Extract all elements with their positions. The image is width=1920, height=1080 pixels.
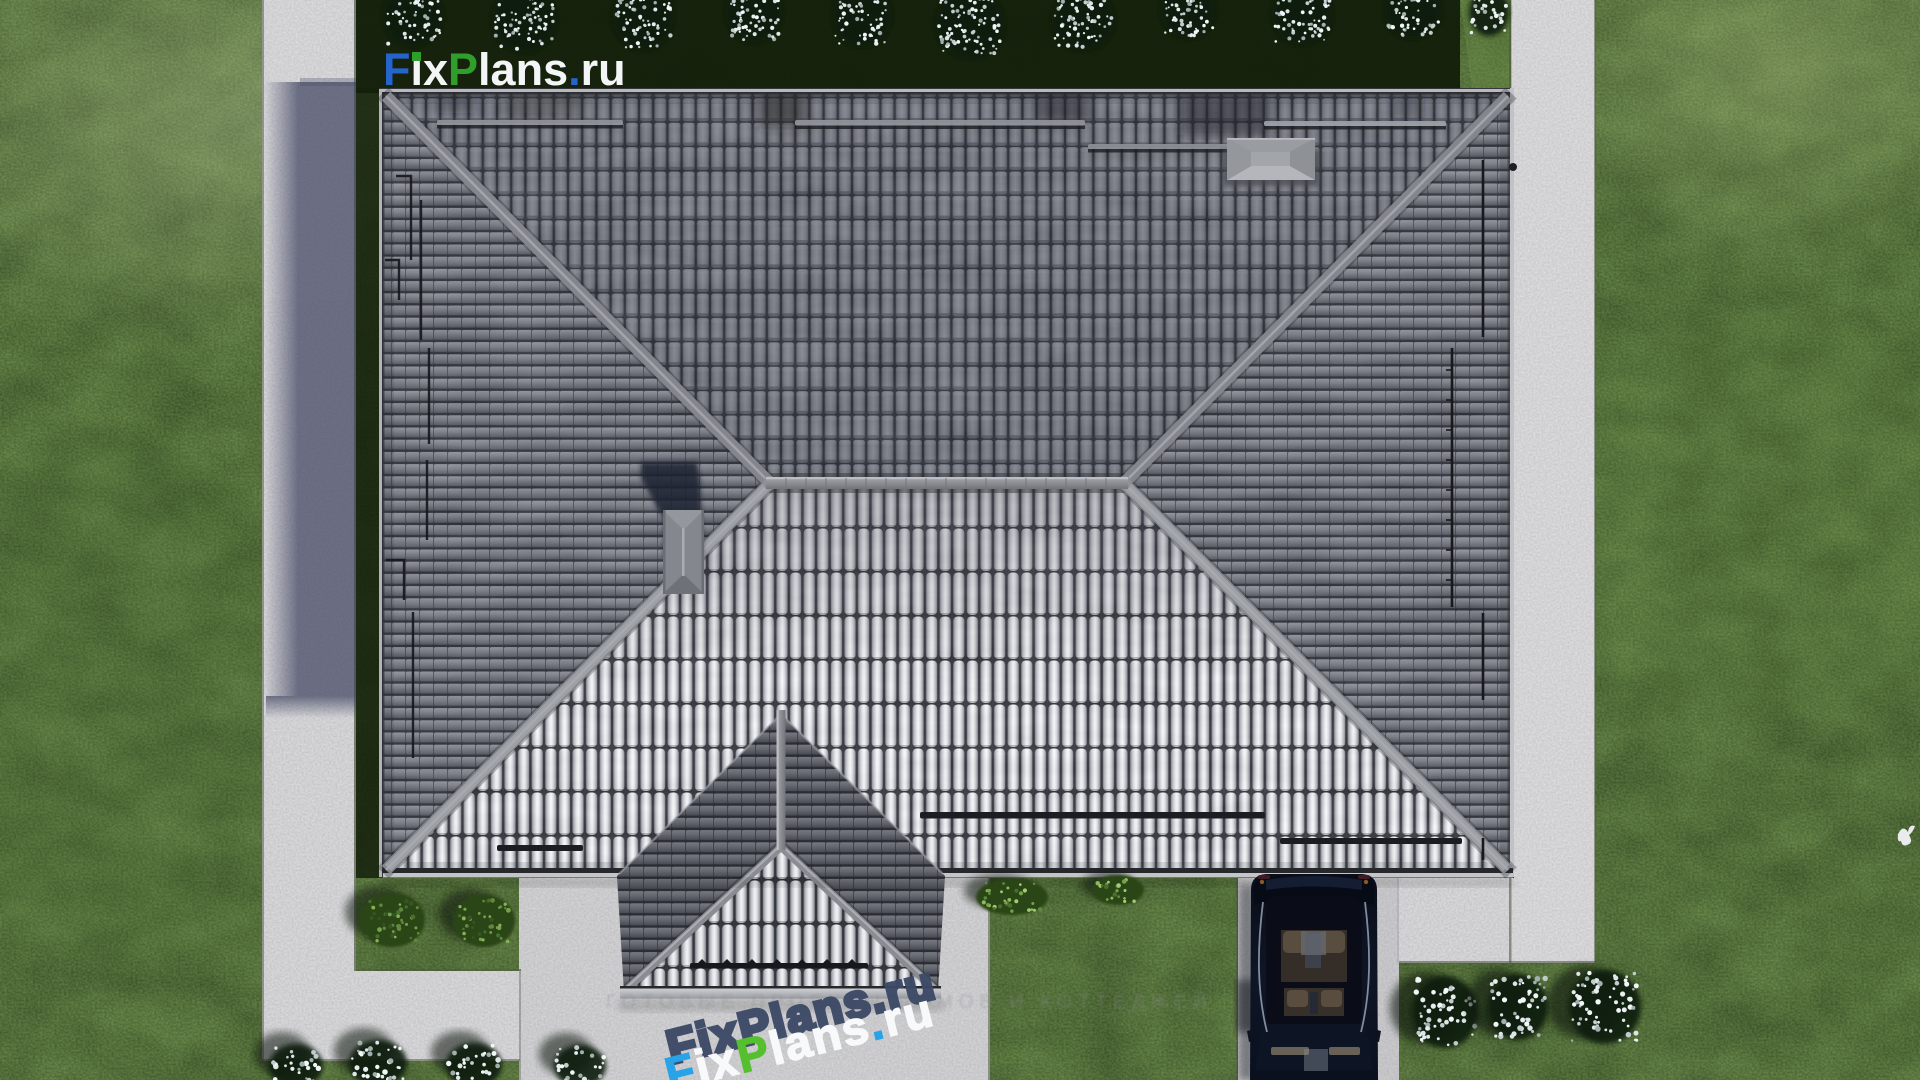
svg-text:FixPlans.ru: FixPlans.ru: [383, 44, 626, 95]
